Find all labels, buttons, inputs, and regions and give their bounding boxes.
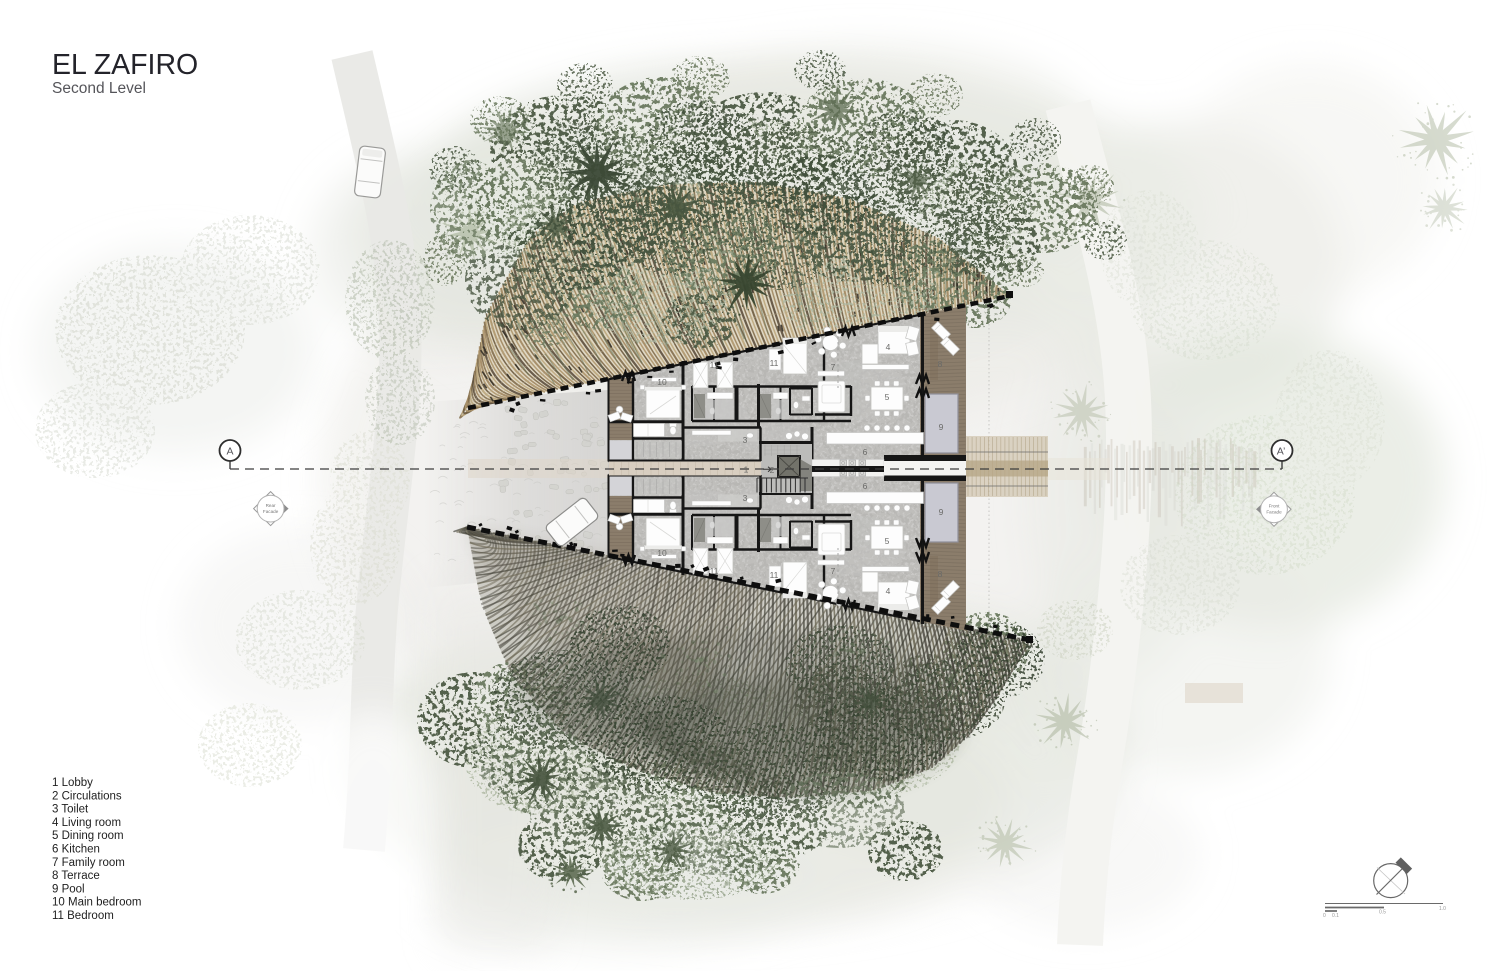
svg-text:11: 11 (770, 570, 779, 580)
svg-text:11: 11 (770, 358, 779, 368)
svg-text:9: 9 (939, 507, 944, 517)
svg-text:EL ZAFIRO: EL ZAFIRO (52, 49, 198, 81)
svg-text:7: 7 (831, 566, 836, 576)
svg-text:4: 4 (886, 342, 891, 352)
svg-text:5: 5 (885, 536, 890, 546)
svg-text:10: 10 (657, 377, 667, 387)
svg-text:Front: Front (1269, 504, 1280, 509)
svg-text:Facade: Facade (263, 509, 279, 514)
svg-text:7: 7 (831, 362, 836, 372)
svg-text:4: 4 (886, 586, 891, 596)
svg-text:9 Pool: 9 Pool (52, 883, 85, 895)
svg-text:0.1: 0.1 (1332, 913, 1339, 919)
svg-text:11 Bedroom: 11 Bedroom (52, 910, 114, 922)
svg-text:Second Level: Second Level (52, 80, 146, 97)
svg-text:11: 11 (710, 360, 719, 370)
svg-text:6 Kitchen: 6 Kitchen (52, 844, 100, 856)
svg-text:8 Terrace: 8 Terrace (52, 870, 100, 882)
svg-text:11: 11 (710, 566, 719, 576)
svg-text:3 Toilet: 3 Toilet (52, 804, 89, 816)
svg-text:2: 2 (770, 465, 775, 475)
svg-text:A: A (226, 446, 233, 458)
svg-text:9: 9 (939, 422, 944, 432)
svg-text:8: 8 (938, 359, 943, 369)
svg-text:0.5: 0.5 (1379, 910, 1386, 916)
svg-text:7 Family room: 7 Family room (52, 857, 125, 869)
svg-text:Facade: Facade (1266, 510, 1282, 515)
svg-text:6: 6 (863, 447, 868, 457)
svg-text:Rear: Rear (266, 503, 276, 508)
svg-text:10: 10 (657, 548, 667, 558)
svg-text:5: 5 (885, 392, 890, 402)
svg-text:8: 8 (938, 569, 943, 579)
svg-text:10 Main bedroom: 10 Main bedroom (52, 897, 142, 909)
svg-text:2 Circulations: 2 Circulations (52, 790, 122, 802)
svg-text:1 Lobby: 1 Lobby (52, 777, 93, 789)
svg-text:3: 3 (743, 435, 748, 445)
svg-text:5 Dining room: 5 Dining room (52, 830, 124, 842)
svg-text:4 Living room: 4 Living room (52, 817, 121, 829)
svg-text:0: 0 (1323, 913, 1326, 919)
svg-text:3: 3 (743, 493, 748, 503)
svg-text:A’: A’ (1277, 446, 1286, 458)
svg-text:1.0: 1.0 (1439, 906, 1446, 912)
svg-text:1: 1 (744, 465, 749, 475)
svg-text:6: 6 (863, 481, 868, 491)
